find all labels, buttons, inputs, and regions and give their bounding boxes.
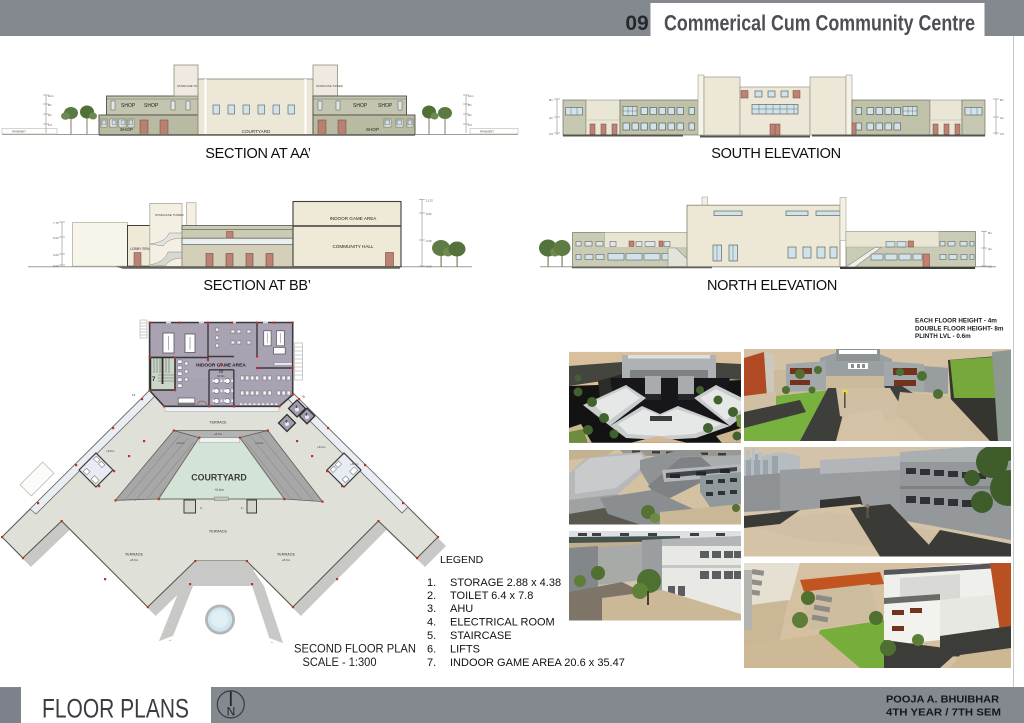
svg-text:+8.6m: +8.6m — [176, 441, 185, 445]
svg-text:SHOP: SHOP — [366, 127, 379, 132]
svg-text:STAIRCASE: STAIRCASE — [450, 630, 512, 642]
svg-text:Commerical Cum Community Centr: Commerical Cum Community Centre — [664, 11, 975, 36]
svg-text:1↓: 1↓ — [200, 506, 204, 510]
svg-text:8m: 8m — [468, 103, 473, 107]
svg-text:POOJA A. BHUIBHAR: POOJA A. BHUIBHAR — [886, 695, 1000, 706]
svg-text:TOILET 6.4 x 7.8: TOILET 6.4 x 7.8 — [450, 590, 533, 602]
svg-text:+8.6m: +8.6m — [350, 462, 359, 466]
svg-text:STORAGE 2.88 x 4.38: STORAGE 2.88 x 4.38 — [450, 577, 561, 589]
svg-text:0.6: 0.6 — [1000, 132, 1004, 136]
svg-text:COURTYARD: COURTYARD — [191, 473, 246, 483]
svg-text:4.: 4. — [427, 617, 436, 629]
svg-text:LIFTS: LIFTS — [450, 644, 480, 656]
svg-text:12m: 12m — [468, 94, 474, 98]
svg-text:PLINTH LVL - 0.6m: PLINTH LVL - 0.6m — [915, 333, 971, 340]
svg-text:13: 13 — [132, 393, 136, 397]
svg-text:4m: 4m — [988, 247, 993, 251]
svg-text:SCALE - 1:300: SCALE - 1:300 — [303, 655, 377, 669]
svg-text:PAVEMENT: PAVEMENT — [480, 130, 494, 134]
svg-text:0.00: 0.00 — [426, 265, 432, 269]
svg-text:SHOP: SHOP — [120, 127, 133, 132]
svg-text:NORTH ELEVATION: NORTH ELEVATION — [707, 278, 837, 294]
svg-text:4.00: 4.00 — [53, 253, 59, 257]
svg-text:0.00: 0.00 — [53, 264, 59, 268]
svg-text:4m: 4m — [1000, 116, 1005, 120]
svg-text:LEGEND: LEGEND — [440, 554, 484, 566]
svg-text:12m: 12m — [48, 94, 54, 98]
svg-text:8.00: 8.00 — [426, 212, 432, 216]
svg-text:INDOOR GAME AREA: INDOOR GAME AREA — [330, 216, 378, 221]
svg-text:8m: 8m — [48, 103, 53, 107]
svg-text:4TH YEAR / 7TH SEM: 4TH YEAR / 7TH SEM — [886, 708, 1001, 719]
svg-text:STAIRCASE TOWER: STAIRCASE TOWER — [316, 84, 343, 88]
svg-text:INDOOR GAME AREA 20.6 x 35.47: INDOOR GAME AREA 20.6 x 35.47 — [450, 657, 625, 669]
svg-text:ELECTRICAL ROOM: ELECTRICAL ROOM — [450, 617, 555, 629]
svg-text:SHOP: SHOP — [144, 103, 159, 109]
svg-text:+8.6m: +8.6m — [282, 558, 291, 562]
svg-text:8m: 8m — [1000, 98, 1005, 102]
svg-text:SHOP: SHOP — [121, 103, 136, 109]
svg-text:COURTYARD: COURTYARD — [242, 129, 271, 134]
svg-text:TERRACE: TERRACE — [125, 553, 144, 557]
svg-text:6.: 6. — [427, 644, 436, 656]
svg-text:4m: 4m — [468, 113, 473, 117]
svg-text:0.6: 0.6 — [468, 123, 472, 127]
svg-text:+8.6m: +8.6m — [255, 441, 264, 445]
svg-text:2.: 2. — [427, 590, 436, 602]
svg-text:8m: 8m — [988, 231, 993, 235]
svg-text:SECTION AT BB’: SECTION AT BB’ — [203, 278, 310, 294]
svg-text:TERRACE: TERRACE — [209, 530, 228, 534]
svg-text:5.: 5. — [427, 630, 436, 642]
svg-text:DOUBLE FLOOR HEIGHT- 8m: DOUBLE FLOOR HEIGHT- 8m — [915, 325, 1004, 332]
svg-text:1.: 1. — [427, 577, 436, 589]
svg-text:PAVEMENT: PAVEMENT — [12, 130, 26, 134]
svg-text:4m: 4m — [48, 113, 53, 117]
svg-text:SECOND FLOOR PLAN: SECOND FLOOR PLAN — [294, 642, 416, 656]
svg-text:FLOOR PLANS: FLOOR PLANS — [42, 694, 189, 723]
svg-text:N: N — [227, 705, 236, 719]
svg-text:16.8m: 16.8m — [217, 374, 225, 378]
svg-text:0.6: 0.6 — [549, 132, 553, 136]
svg-text:2.00: 2.00 — [426, 239, 432, 243]
svg-text:8m: 8m — [549, 98, 554, 102]
svg-text:11.32: 11.32 — [426, 199, 433, 203]
svg-text:TERRACE: TERRACE — [277, 553, 296, 557]
svg-text:8: 8 — [306, 413, 308, 417]
svg-text:09: 09 — [625, 12, 648, 35]
svg-text:0.0: 0.0 — [988, 265, 992, 269]
svg-text:SOUTH ELEVATION: SOUTH ELEVATION — [711, 146, 841, 162]
svg-text:12: 12 — [219, 369, 224, 374]
svg-text:+8.6m: +8.6m — [106, 449, 115, 453]
svg-text:AHU: AHU — [450, 603, 473, 615]
svg-text:COMMUNITY HALL: COMMUNITY HALL — [332, 244, 373, 249]
svg-text:1↓: 1↓ — [241, 506, 245, 510]
svg-text:6.00: 6.00 — [53, 236, 59, 240]
svg-text:+8.6m: +8.6m — [214, 432, 223, 436]
svg-text:9: 9 — [296, 405, 298, 409]
svg-text:3.: 3. — [427, 603, 436, 615]
svg-text:SHOP: SHOP — [378, 103, 393, 109]
svg-text:EACH FLOOR HEIGHT - 4m: EACH FLOOR HEIGHT - 4m — [915, 318, 997, 325]
svg-text:+0.6m: +0.6m — [214, 488, 224, 492]
svg-text:STAIRCASE TOWER: STAIRCASE TOWER — [155, 213, 185, 217]
svg-text:0.6: 0.6 — [48, 123, 52, 127]
svg-text:6: 6 — [286, 420, 288, 424]
svg-text:SHOP: SHOP — [353, 103, 368, 109]
svg-text:TERRACE: TERRACE — [209, 421, 227, 425]
svg-text:7.75: 7.75 — [53, 221, 59, 225]
svg-text:+8.6m: +8.6m — [130, 558, 139, 562]
svg-text:SECTION AT AA’: SECTION AT AA’ — [205, 146, 310, 162]
svg-text:7.: 7. — [427, 657, 436, 669]
svg-text:+8.6m: +8.6m — [317, 445, 326, 449]
svg-text:4m: 4m — [549, 116, 554, 120]
